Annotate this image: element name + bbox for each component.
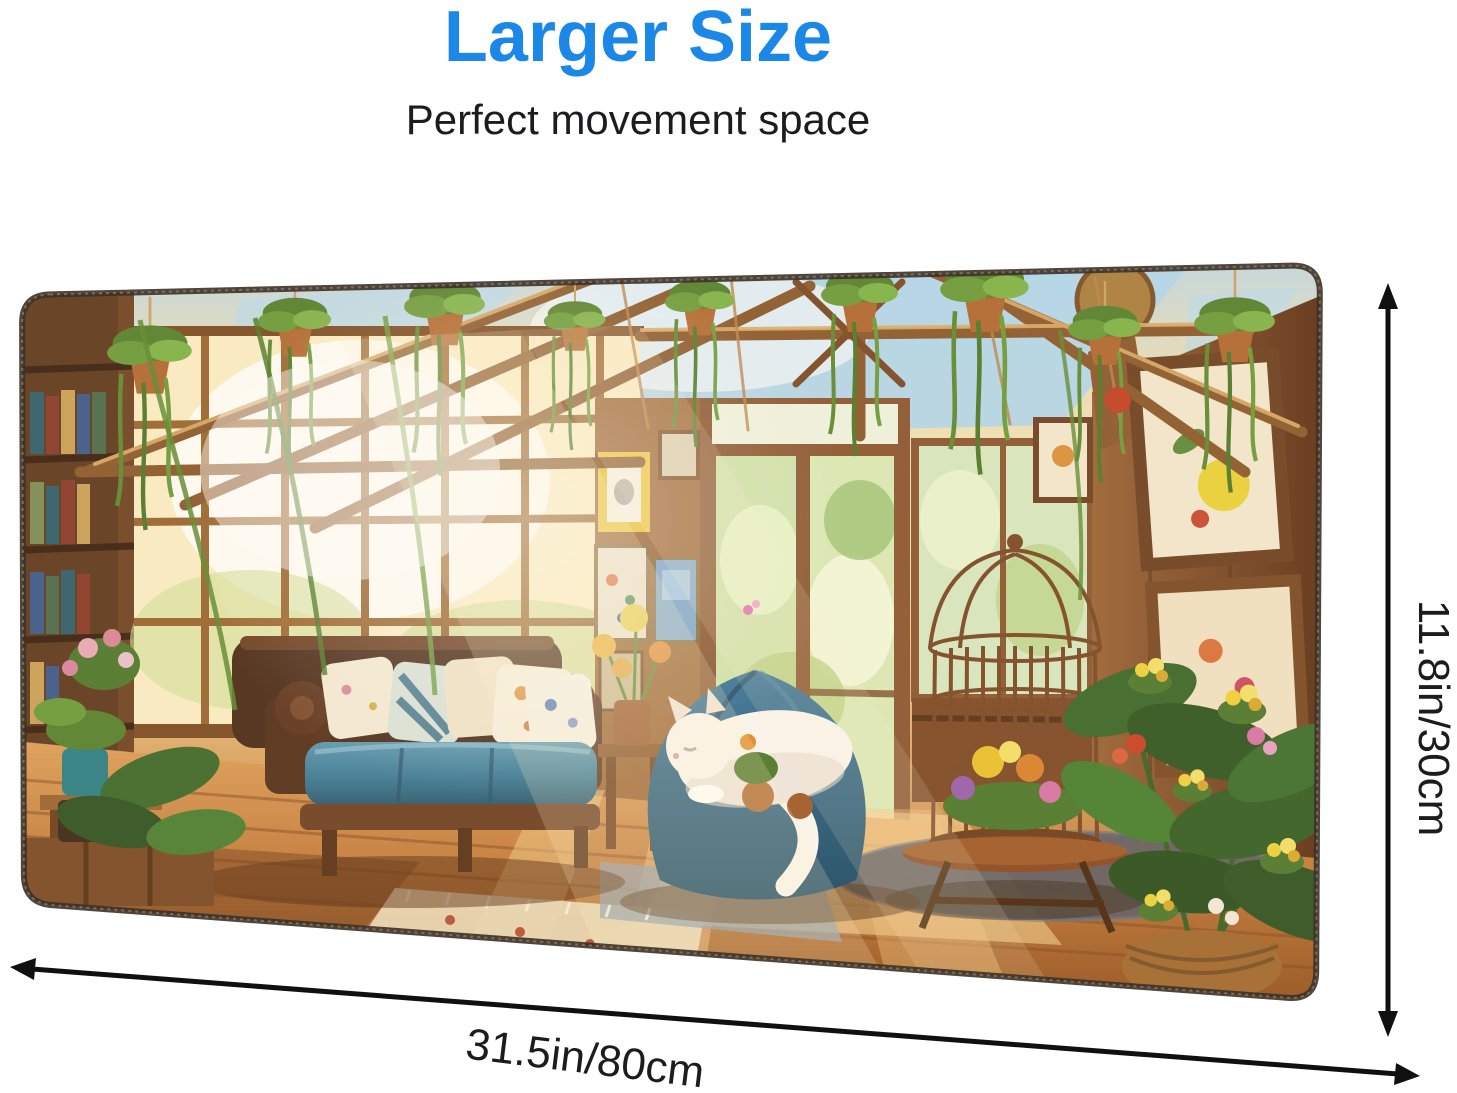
- width-arrow-icon: [10, 958, 1420, 1085]
- dimension-annotations: [0, 0, 1457, 1093]
- height-dimension-label: 11.8in/30cm: [1408, 600, 1457, 836]
- product-image: Larger Size Perfect movement space: [0, 0, 1457, 1093]
- height-arrow-icon: [1378, 283, 1398, 1037]
